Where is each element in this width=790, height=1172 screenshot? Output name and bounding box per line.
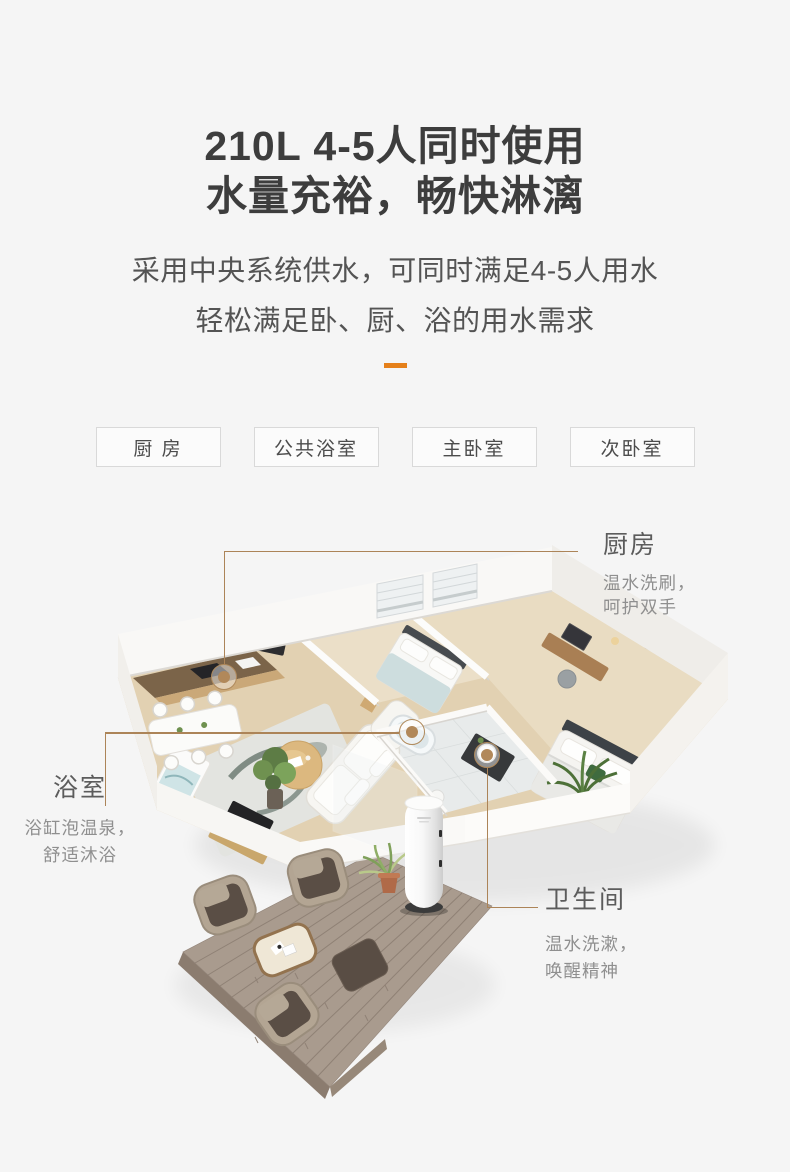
desk-chair <box>558 670 576 688</box>
callout-connector-washroom-vertical <box>487 768 489 907</box>
callout-connector-kitchen-horizontal <box>224 551 578 553</box>
apartment-3d-render <box>85 545 745 1105</box>
callout-dot-washroom <box>474 742 500 768</box>
callout-washroom-desc: 温水洗漱， 唤醒精神 <box>545 931 638 985</box>
callout-bathroom: 浴室 浴缸泡温泉， 舒适沐浴 <box>20 776 140 869</box>
floorplan-illustration: 厨房 温水洗刷， 呵护双手 浴室 浴缸泡温泉， 舒适沐浴 卫生间 温水洗漱， 唤… <box>0 0 790 1172</box>
callout-washroom-title: 卫生间 <box>545 888 638 913</box>
callout-kitchen: 厨房 温水洗刷， 呵护双手 <box>603 533 696 619</box>
callout-kitchen-desc: 温水洗刷， 呵护双手 <box>603 572 696 619</box>
callout-bathroom-title: 浴室 <box>20 776 140 801</box>
callout-bathroom-desc: 浴缸泡温泉， 舒适沐浴 <box>20 815 140 869</box>
callout-kitchen-title: 厨房 <box>603 533 696 558</box>
table-lamp <box>611 637 619 645</box>
callout-connector-washroom-horizontal <box>487 907 538 909</box>
callout-connector-bathroom-horizontal <box>106 732 399 734</box>
callout-washroom: 卫生间 温水洗漱， 唤醒精神 <box>545 888 638 985</box>
callout-dot-kitchen <box>211 664 237 690</box>
callout-connector-kitchen-vertical <box>224 551 226 664</box>
callout-dot-bathroom <box>399 719 425 745</box>
